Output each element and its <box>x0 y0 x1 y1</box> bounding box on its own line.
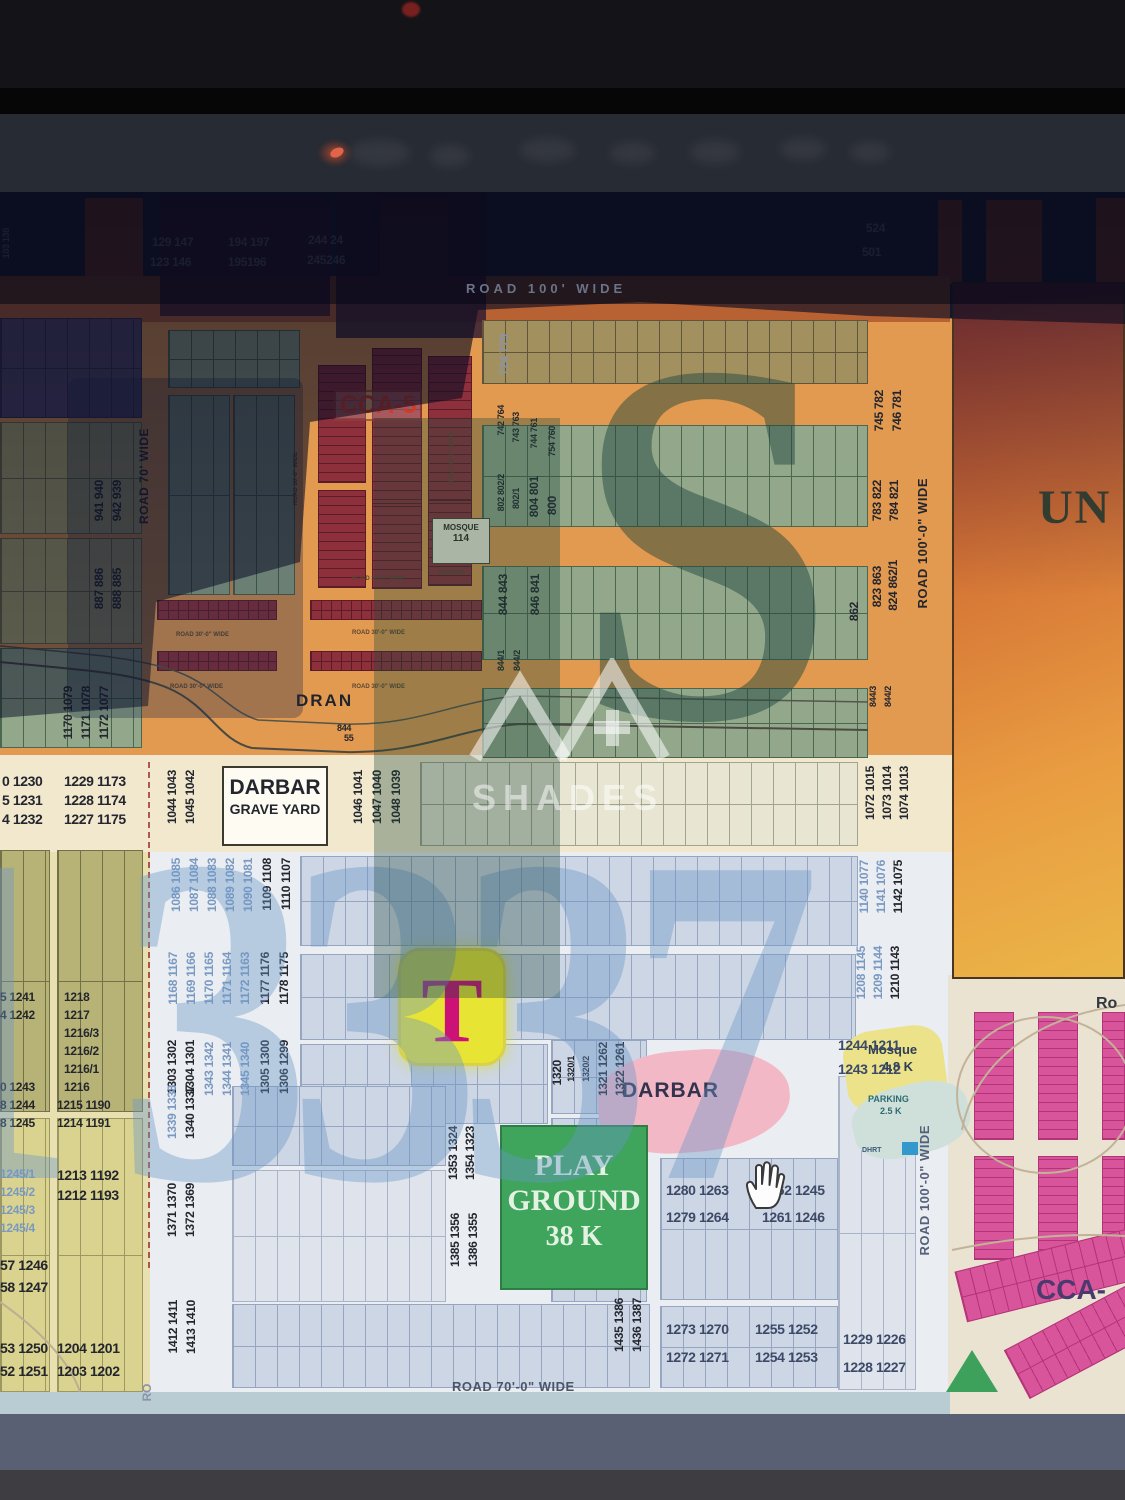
watermark-brand: SHADES <box>472 780 664 816</box>
bottom-band <box>0 1414 1125 1470</box>
watermark-logo-icon <box>460 658 680 768</box>
road-label-right-upper: ROAD 100'-0" WIDE <box>916 478 929 608</box>
dhrt-label: DHRT <box>862 1147 881 1154</box>
darbar-graveyard-box: DARBAR GRAVE YARD <box>222 766 328 846</box>
cca-bottom-right-label: CCA- <box>1036 1276 1106 1304</box>
dhrt-icon <box>902 1142 918 1155</box>
darbar-box-title: DARBAR <box>224 776 326 799</box>
darbar-area-label: DARBAR <box>622 1080 719 1101</box>
ro-label: Ro <box>1096 996 1117 1012</box>
bezel-top <box>0 0 1125 88</box>
hand-cursor <box>742 1158 788 1210</box>
darbar-box-sub: GRAVE YARD <box>224 799 326 820</box>
road-label-top: ROAD 100' WIDE <box>466 282 626 295</box>
map-screenshot: UN DARBAR GRAVE YARD MOSQUE 114 PARKING … <box>0 0 1125 1500</box>
playground-line3: 38 K <box>502 1218 646 1256</box>
playground-line2: GROUND <box>502 1184 646 1219</box>
playground-box: PLAY GROUND 38 K <box>500 1125 648 1290</box>
watermark-blob <box>68 378 303 718</box>
playground-line1: PLAY <box>502 1149 646 1184</box>
bezel-top-line <box>0 88 1125 114</box>
camera-dot <box>402 2 420 17</box>
dran-label: DRAN <box>296 692 353 709</box>
cca5-label: CCA-5 <box>334 390 422 421</box>
road-label-right-lower: ROAD 100'-0" WIDE <box>918 1125 931 1255</box>
bottom-band-dark <box>0 1470 1125 1500</box>
parking-label: PARKING2.5 K <box>868 1094 909 1117</box>
road-label-bottom: ROAD 70'-0" WIDE <box>452 1380 575 1393</box>
boundary-dashed-line <box>148 762 150 1268</box>
map-canvas[interactable]: UN DARBAR GRAVE YARD MOSQUE 114 PARKING … <box>0 0 1125 1500</box>
mosque-label: Mosque4.8 K <box>868 1042 917 1076</box>
